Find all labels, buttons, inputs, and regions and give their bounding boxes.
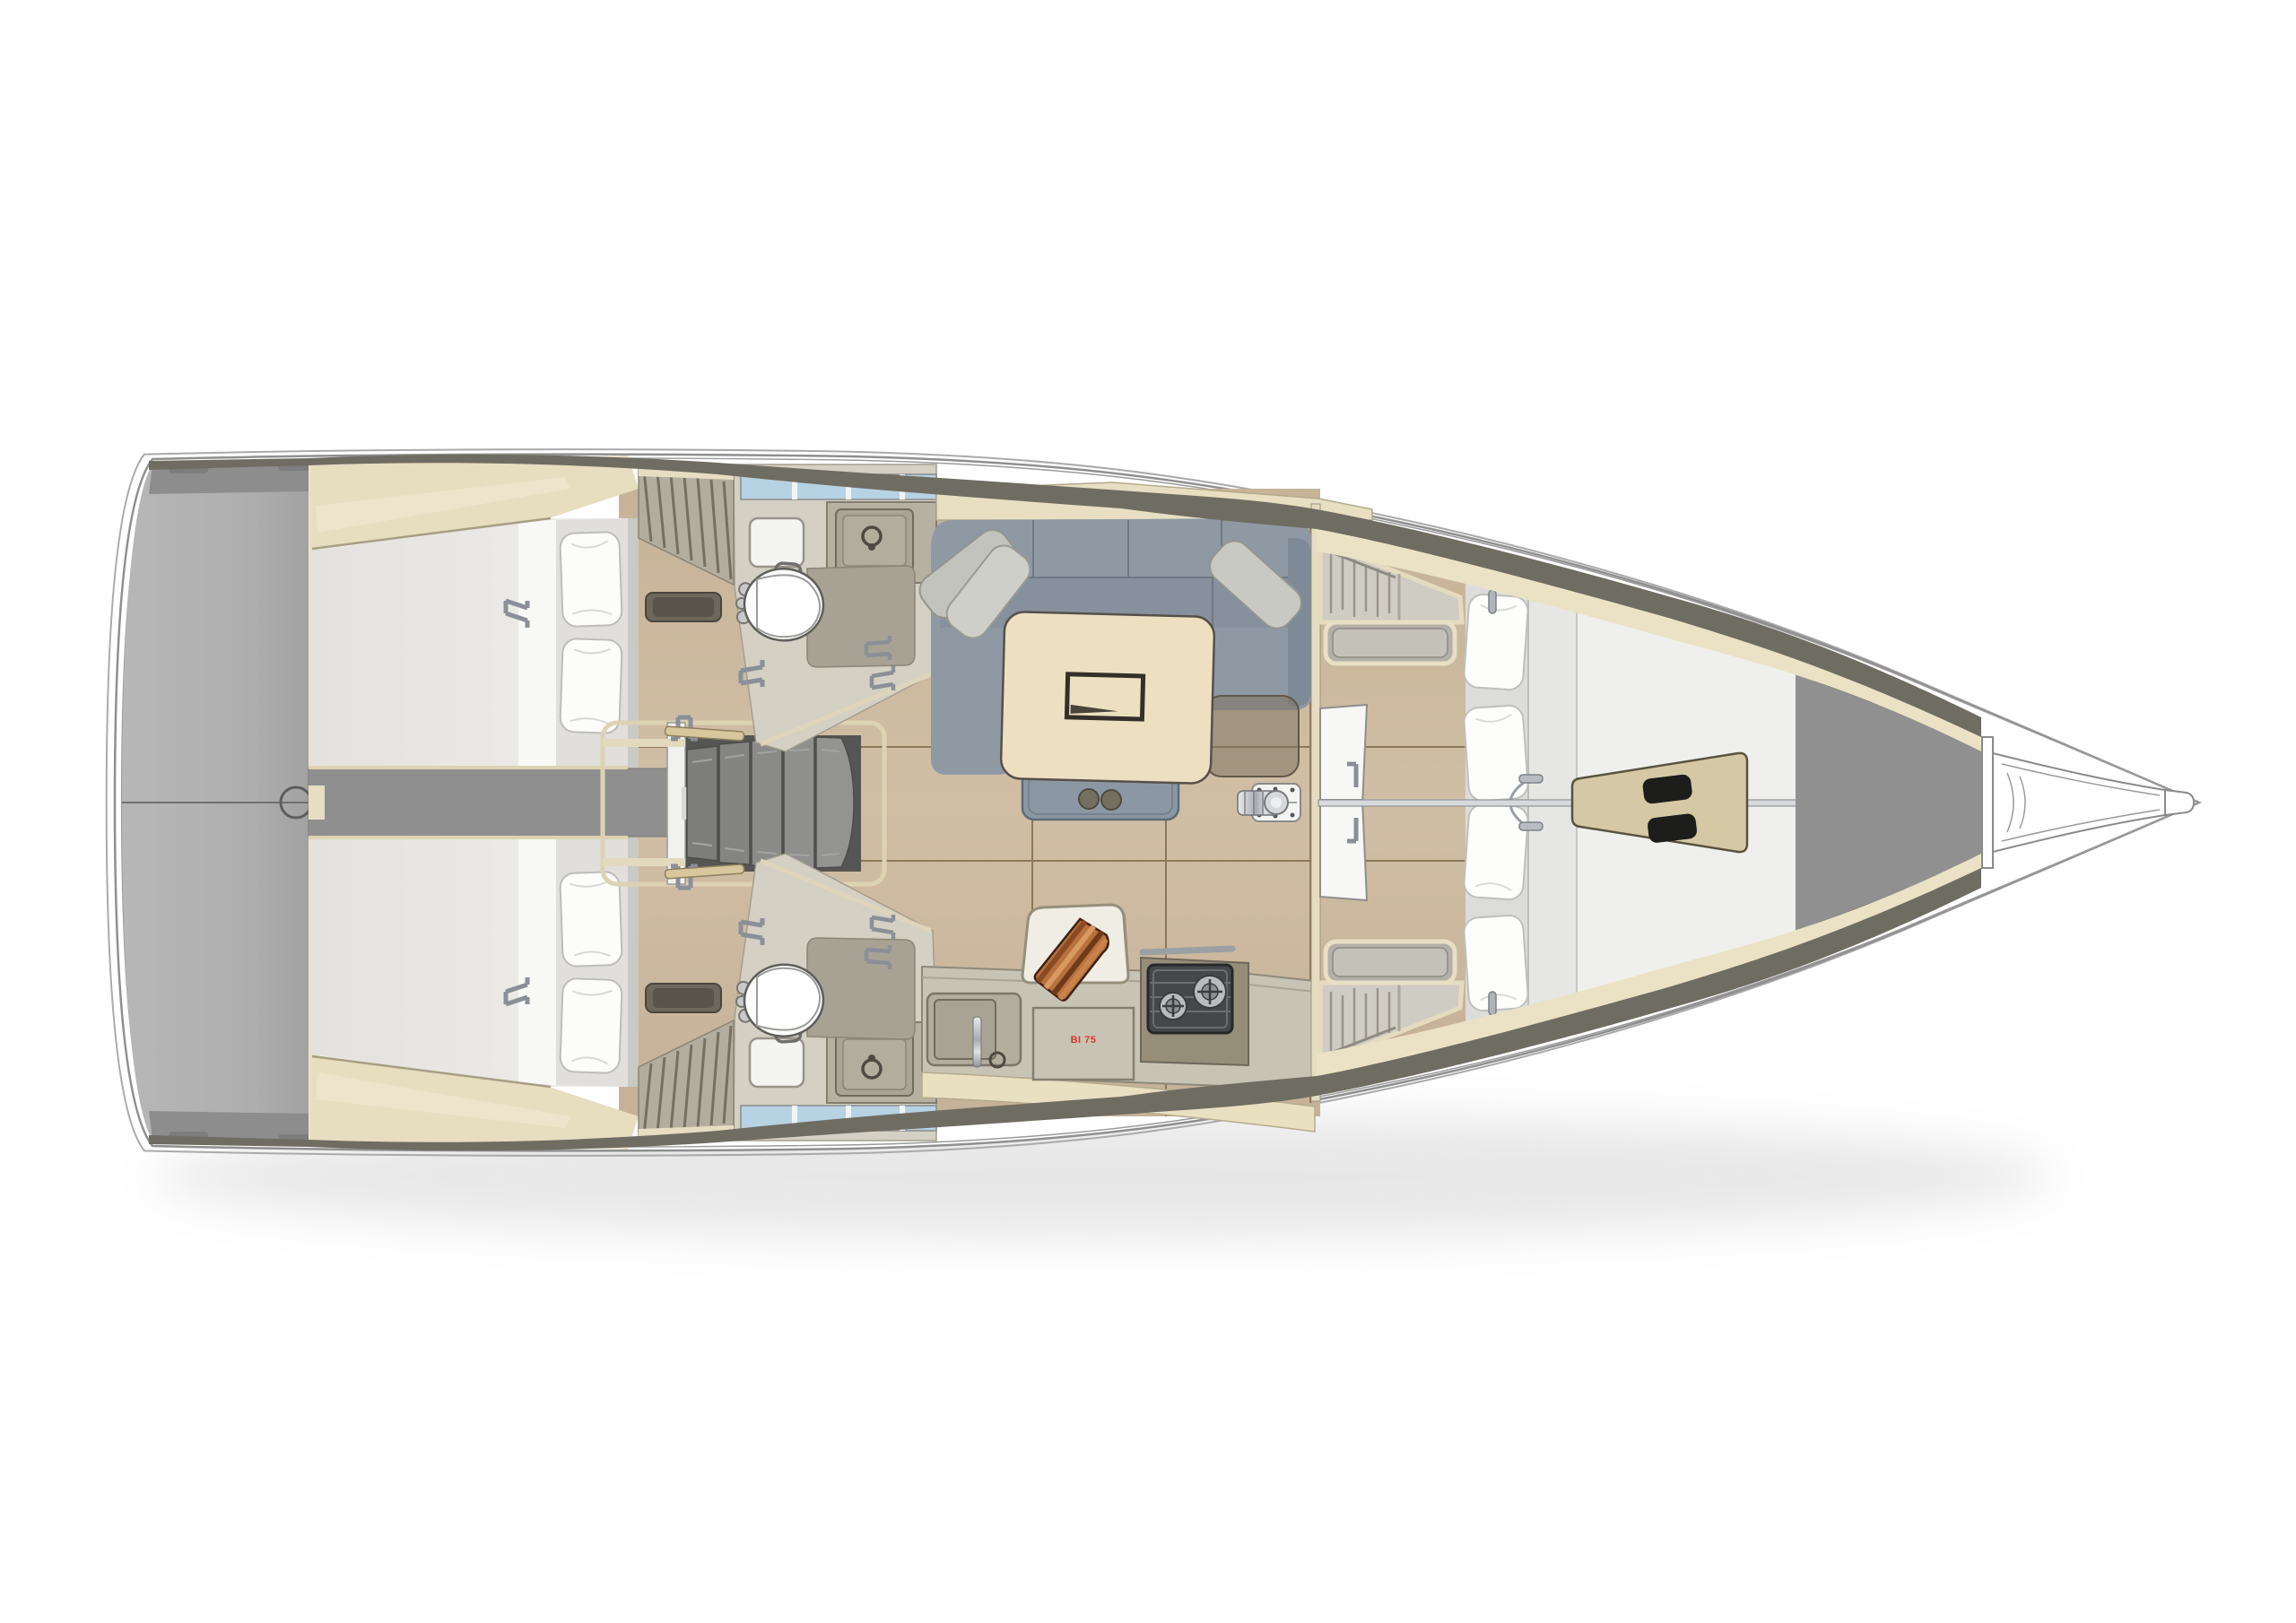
- svg-text:BI 75: BI 75: [1071, 1035, 1097, 1046]
